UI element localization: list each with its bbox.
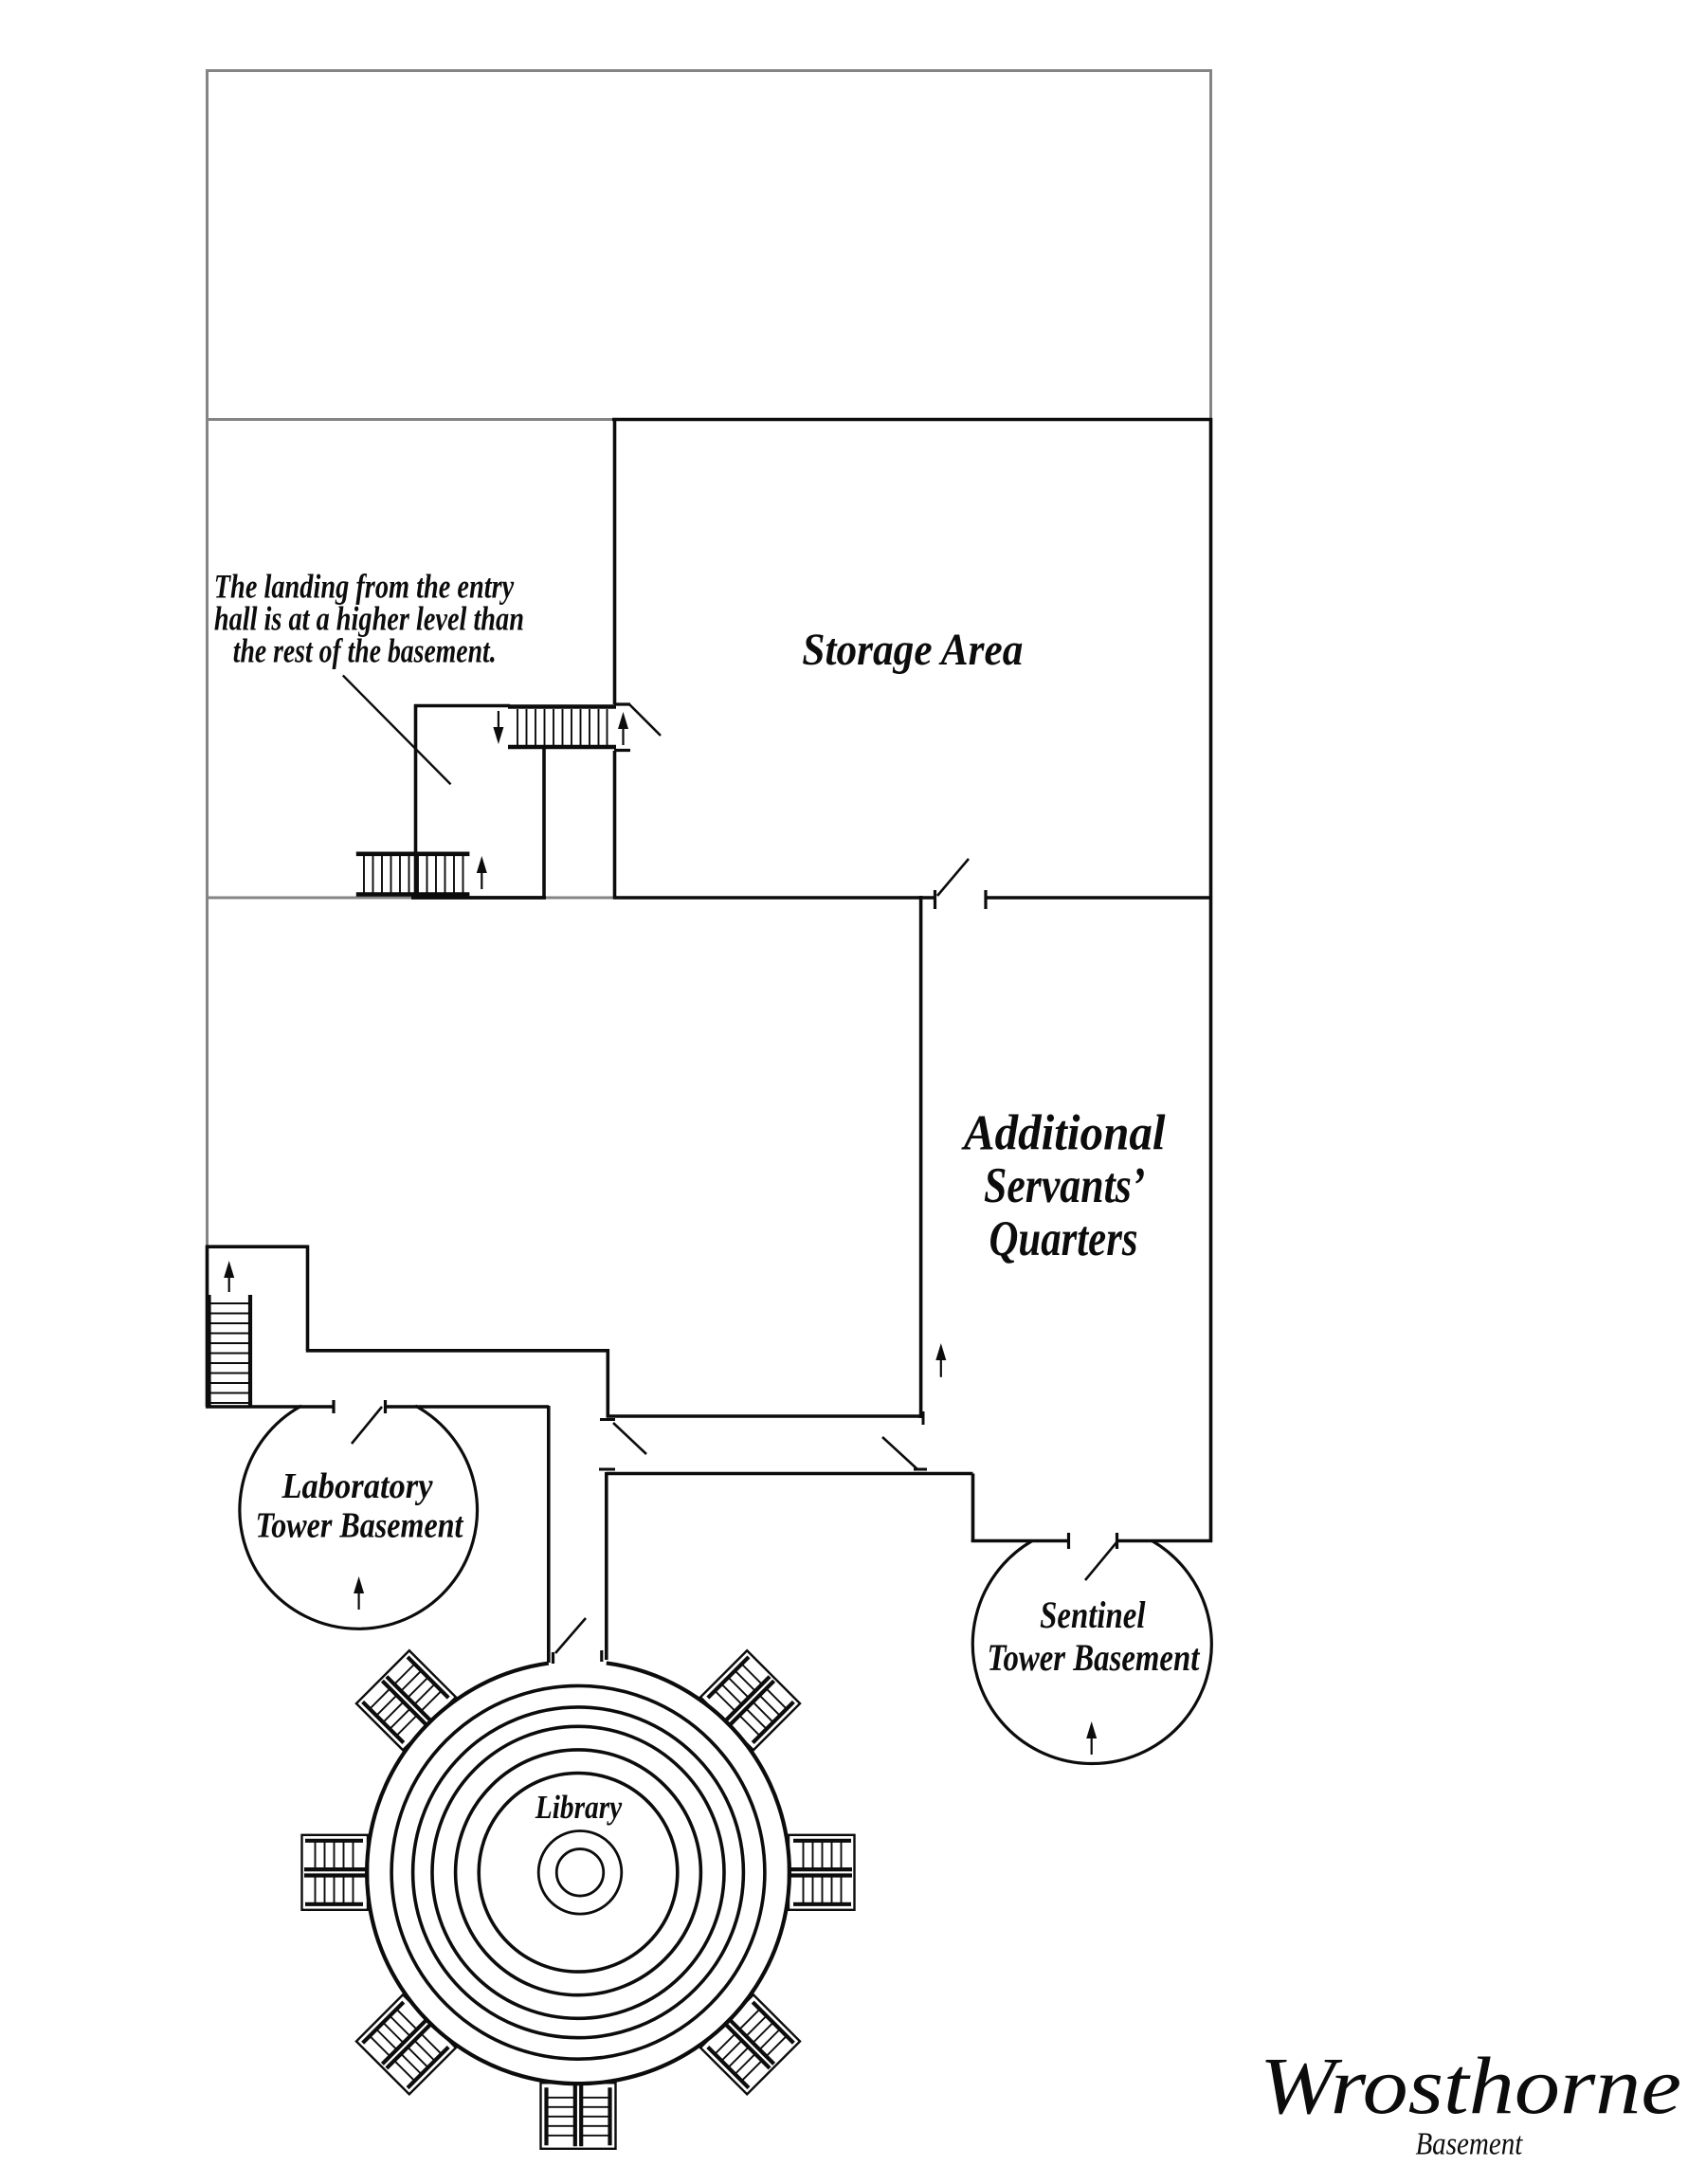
svg-text:Library: Library [535,1789,623,1826]
svg-text:Basement: Basement [1415,2127,1523,2162]
svg-text:the rest of the basement.: the rest of the basement. [233,631,497,669]
svg-text:Wrosthorne: Wrosthorne [1260,2040,1681,2131]
svg-text:Storage Area: Storage Area [802,625,1023,675]
svg-text:Quarters: Quarters [989,1211,1137,1266]
svg-text:Tower Basement: Tower Basement [256,1506,464,1546]
svg-text:Additional: Additional [961,1106,1166,1161]
svg-text:Laboratory: Laboratory [281,1466,433,1506]
svg-text:Tower Basement: Tower Basement [987,1636,1200,1679]
svg-text:Servants’: Servants’ [984,1158,1145,1213]
svg-text:Sentinel: Sentinel [1040,1593,1146,1636]
